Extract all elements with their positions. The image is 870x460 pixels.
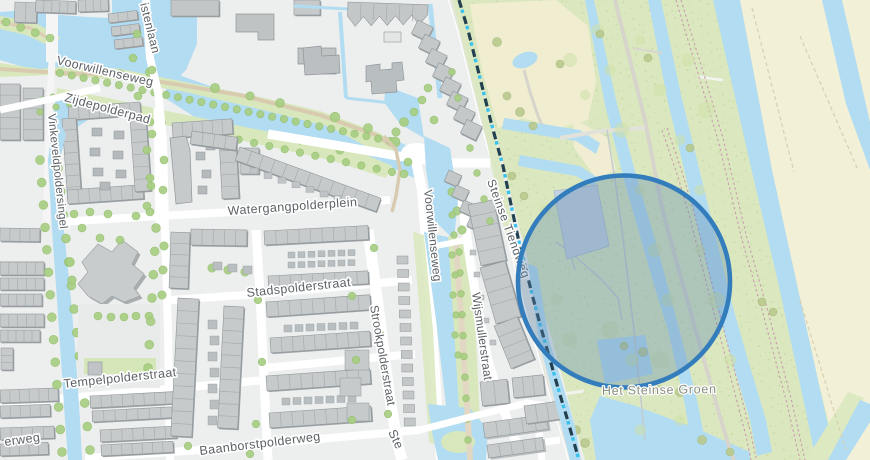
svg-text:Het Steinse Groen: Het Steinse Groen [602,382,717,398]
